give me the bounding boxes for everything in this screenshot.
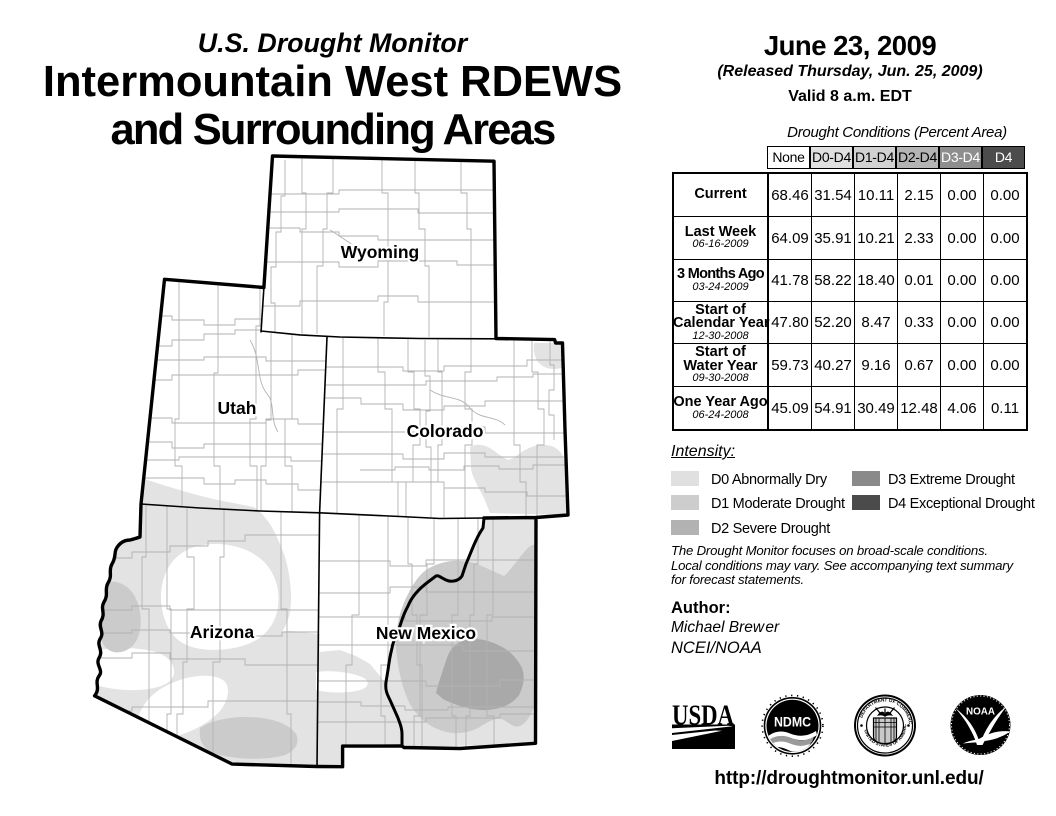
svg-text:Arizona: Arizona bbox=[190, 622, 254, 642]
svg-text:Colorado: Colorado bbox=[407, 421, 484, 441]
svg-text:Wyoming: Wyoming bbox=[341, 242, 419, 262]
svg-text:NOAA: NOAA bbox=[966, 706, 995, 718]
svg-text:NDMC: NDMC bbox=[774, 714, 811, 730]
svg-text:Utah: Utah bbox=[218, 398, 257, 418]
svg-text:New Mexico: New Mexico bbox=[376, 623, 476, 643]
